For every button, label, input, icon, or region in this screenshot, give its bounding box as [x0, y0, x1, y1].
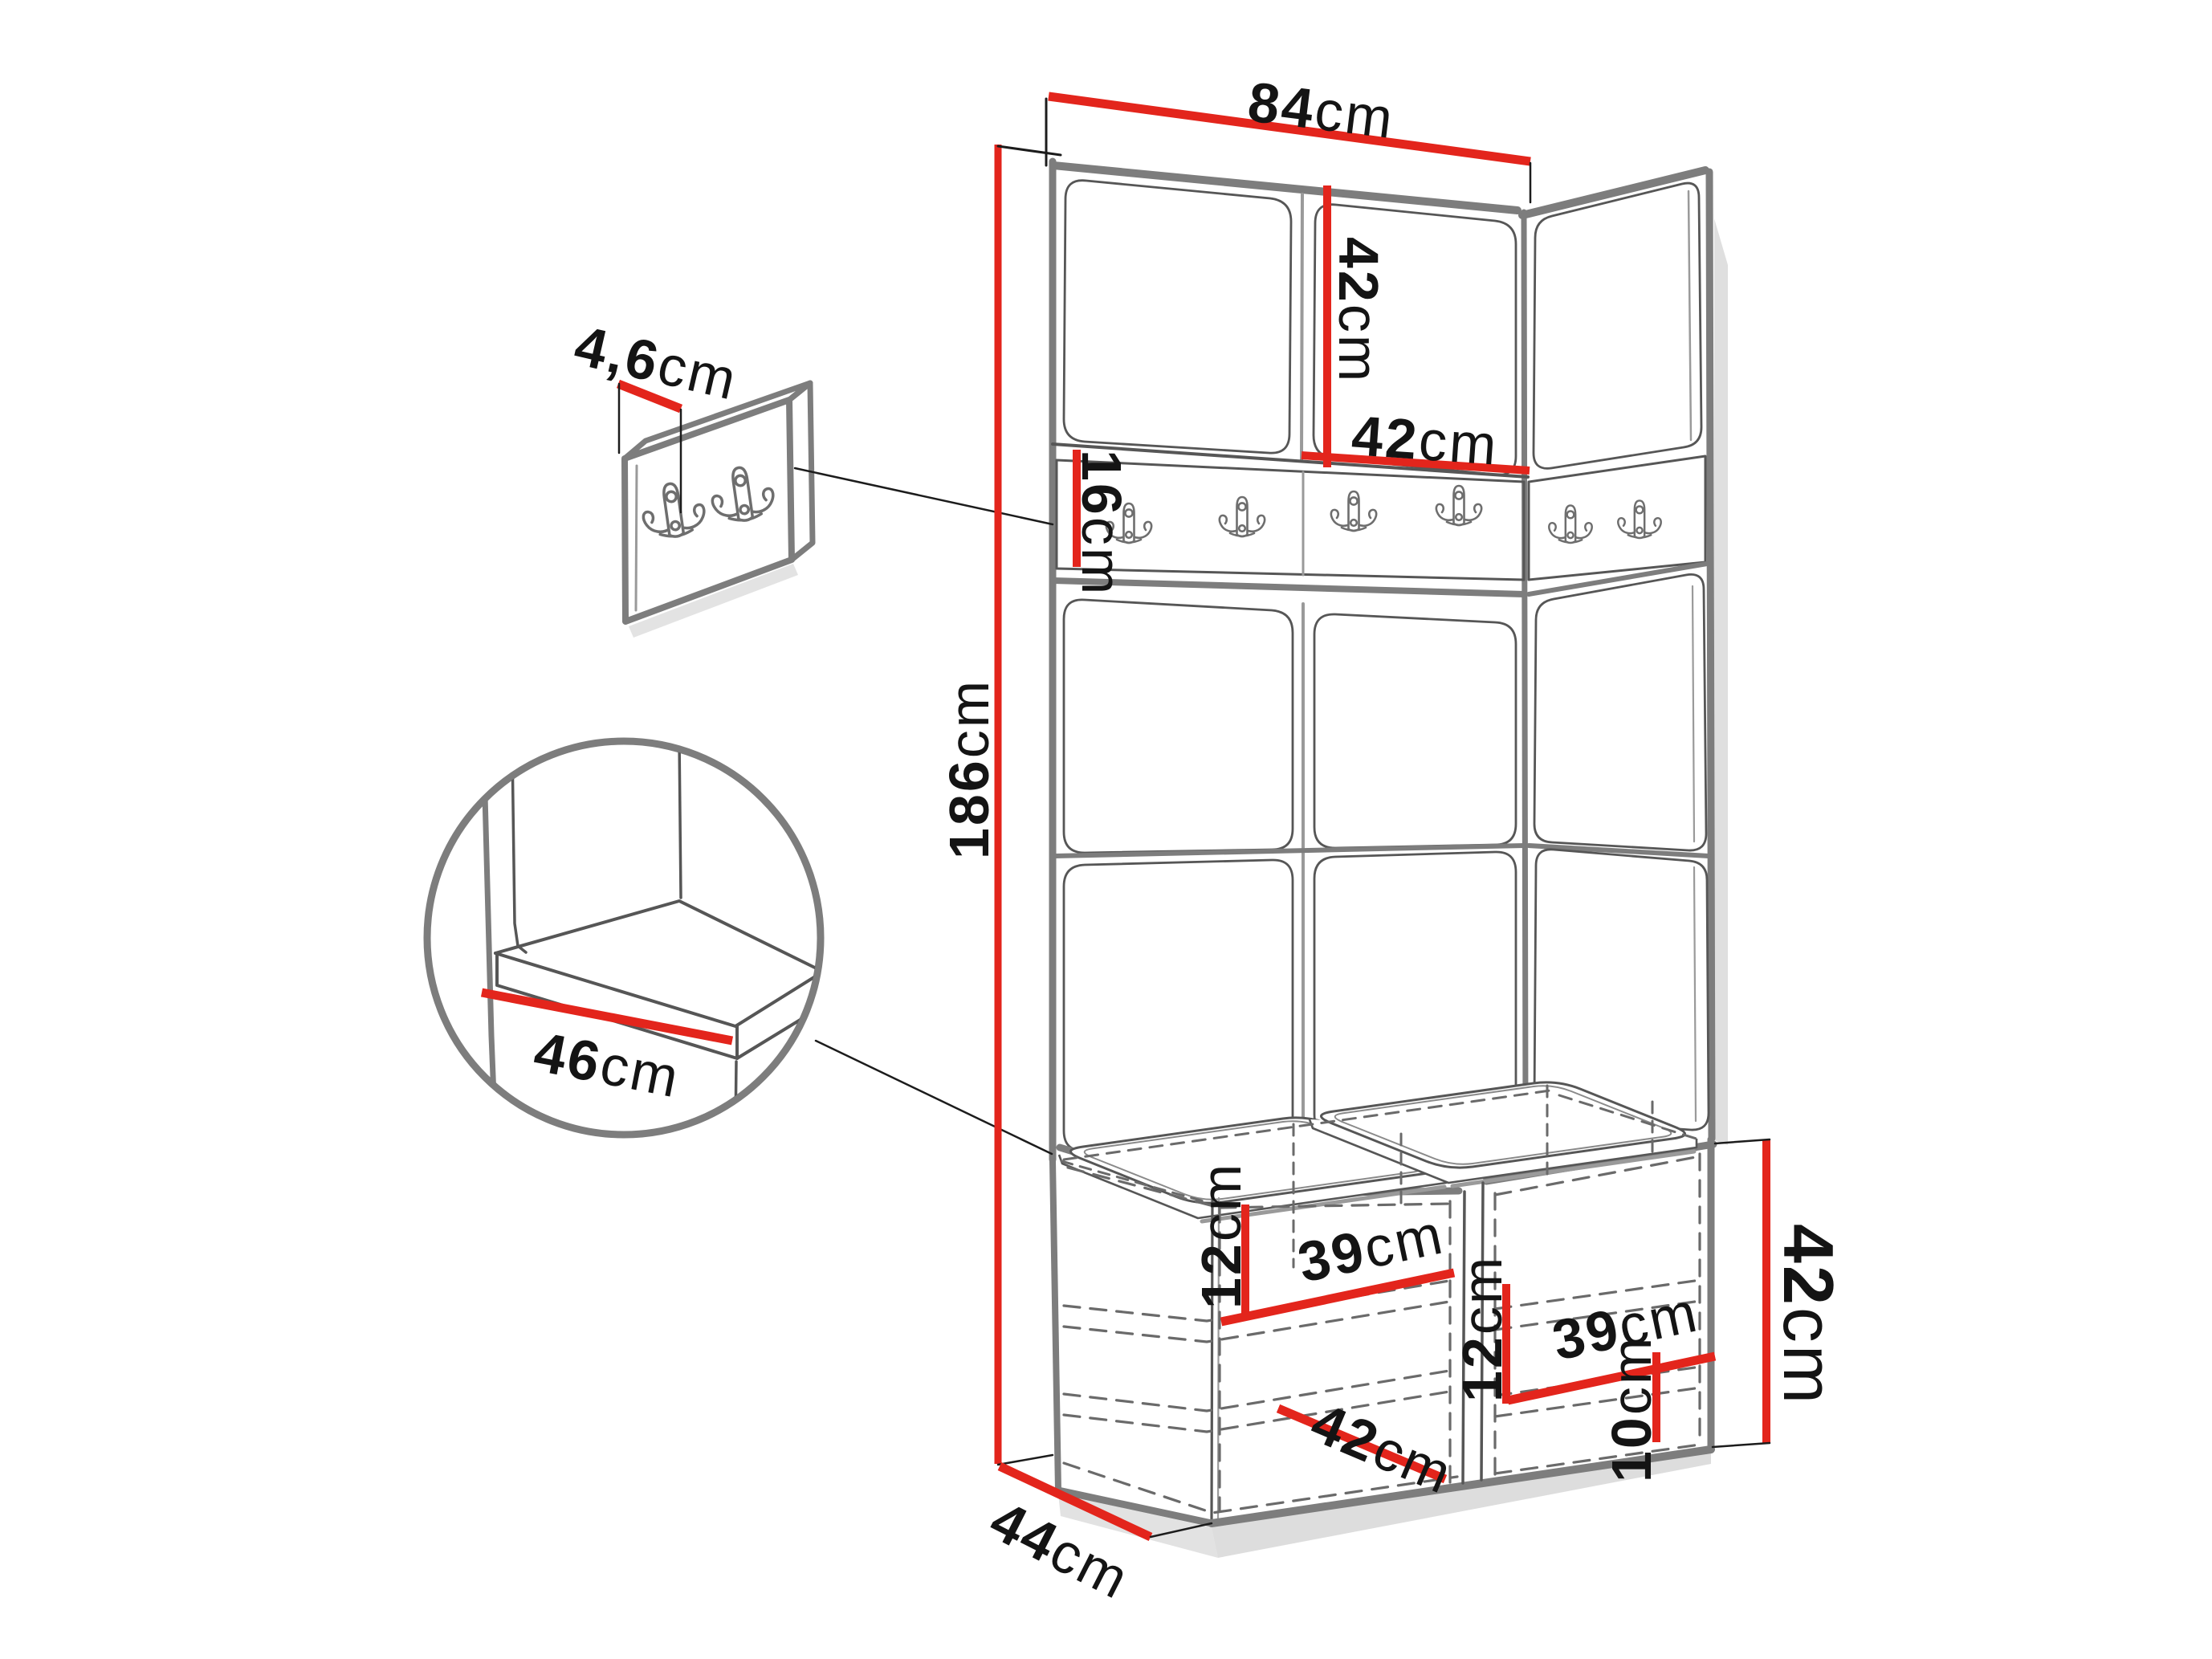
svg-text:186cm: 186cm [938, 679, 1000, 859]
svg-text:42cm: 42cm [1327, 237, 1390, 384]
svg-text:42cm: 42cm [1350, 404, 1501, 477]
svg-text:42cm: 42cm [1769, 1224, 1848, 1406]
svg-text:12cm: 12cm [1451, 1255, 1513, 1402]
svg-text:16cm: 16cm [1070, 450, 1133, 597]
svg-text:12cm: 12cm [1190, 1162, 1253, 1309]
svg-text:10cm: 10cm [1600, 1335, 1663, 1482]
